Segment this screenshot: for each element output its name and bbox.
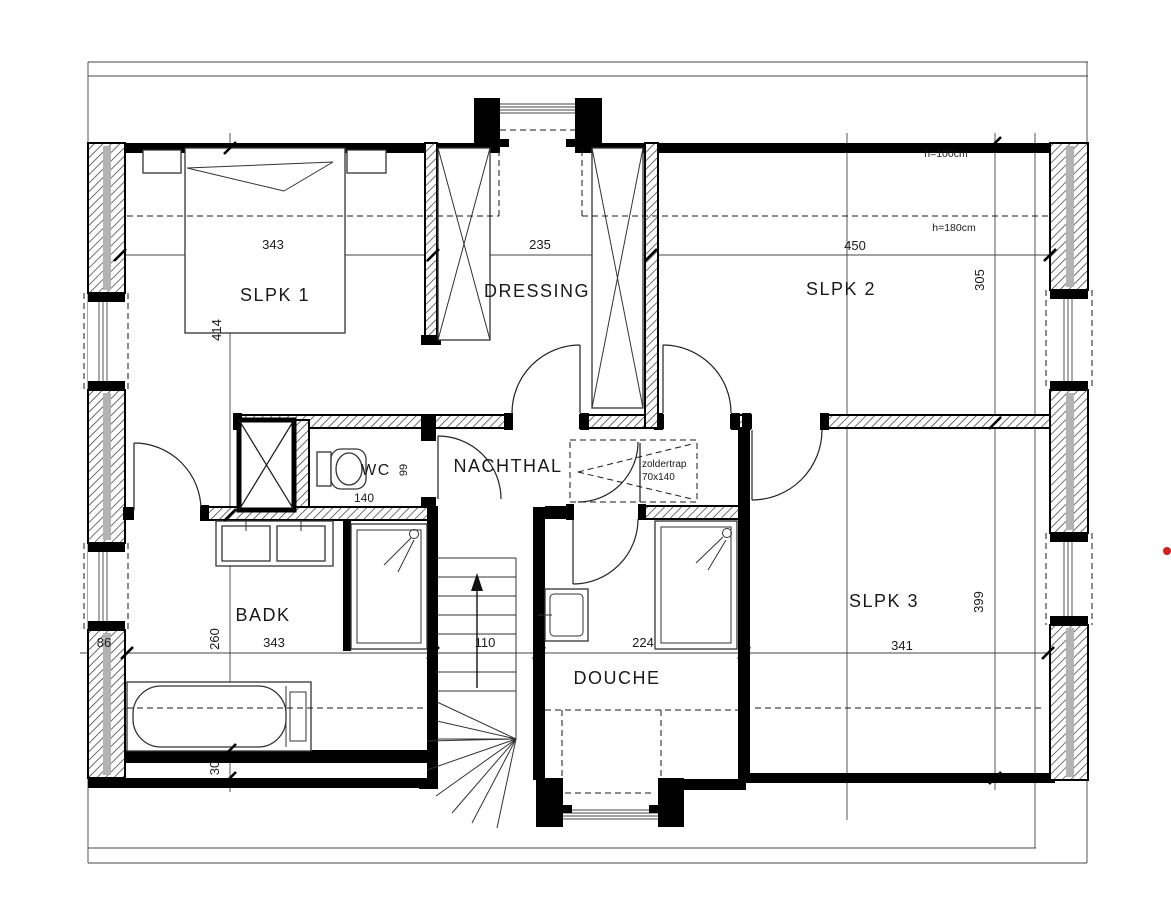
wall-dressing-east bbox=[645, 143, 658, 428]
wall-right-segment-3 bbox=[1050, 625, 1088, 780]
dim-stairs-width: 110 bbox=[475, 635, 496, 650]
stairs bbox=[427, 558, 516, 828]
wardrobe-left bbox=[438, 148, 490, 340]
attic-hatch-label: zoldertrap bbox=[642, 459, 687, 470]
dim-slpk3-height: 399 bbox=[971, 591, 986, 613]
wall-douche-east bbox=[738, 428, 750, 783]
dormer-south-pier-left bbox=[536, 778, 563, 827]
washbasin-douche bbox=[538, 589, 588, 641]
dormer-south bbox=[536, 710, 738, 827]
wall-bottom-left bbox=[88, 778, 438, 788]
toilet bbox=[317, 449, 366, 489]
dim-slpk1-height: 414 bbox=[209, 319, 224, 341]
dim-slpk3-width: 341 bbox=[891, 638, 913, 653]
window-right-2 bbox=[1046, 533, 1092, 625]
wall-stairs-east bbox=[533, 507, 545, 780]
dim-slpk2-height: 305 bbox=[972, 269, 987, 291]
attic-hatch-size: 70x140 bbox=[642, 472, 675, 483]
dim-wc-width: 140 bbox=[354, 491, 374, 505]
dim-douche-width: 224 bbox=[632, 635, 654, 650]
wall-left-segment-2 bbox=[88, 390, 125, 543]
window-left-2 bbox=[84, 543, 128, 630]
room-label-slpk1: SLPK 1 bbox=[240, 285, 310, 305]
wall-badk-bottom bbox=[123, 750, 433, 763]
attic-hatch: zoldertrap 70x140 bbox=[570, 440, 697, 502]
dim-slpk2-width: 450 bbox=[844, 238, 866, 253]
dim-badk-window: 86 bbox=[97, 635, 111, 650]
wall-bottom-stub bbox=[684, 779, 746, 790]
wall-badk-north bbox=[201, 507, 437, 520]
wall-wc-east-stub-top bbox=[421, 415, 436, 441]
wall-slpk3-north bbox=[822, 415, 1050, 428]
wardrobe-right bbox=[592, 148, 643, 408]
wall-hall-south-2 bbox=[640, 506, 740, 519]
wall-bottom-slpk3 bbox=[745, 773, 1055, 783]
window-right-1 bbox=[1046, 290, 1092, 390]
dormer-south-pier-right bbox=[658, 778, 684, 827]
bathtub bbox=[127, 682, 311, 751]
floor-plan-drawing: zoldertrap 70x140 bbox=[0, 0, 1171, 897]
wall-left-segment-3 bbox=[88, 630, 125, 778]
dim-badk-kneewall-offset: 30 bbox=[207, 761, 222, 775]
dormer-north-pier-left bbox=[474, 98, 500, 150]
wall-shower-partition bbox=[343, 521, 351, 651]
door-slpk2 bbox=[663, 345, 731, 413]
dim-badk-depth: 260 bbox=[207, 628, 222, 650]
duct-shaft bbox=[239, 420, 294, 510]
vanity-badk bbox=[216, 521, 333, 566]
nightstand-left bbox=[143, 150, 181, 173]
dormer-north bbox=[474, 98, 602, 216]
wall-right-segment-1 bbox=[1050, 143, 1088, 290]
wall-dressing-west bbox=[425, 143, 437, 343]
door-douche bbox=[573, 519, 638, 584]
dim-wc-depth: 99 bbox=[398, 464, 410, 476]
room-label-wc: WC bbox=[361, 462, 391, 479]
red-marker-dot bbox=[1163, 547, 1171, 555]
wall-left-segment-1 bbox=[88, 143, 125, 293]
dim-badk-width: 343 bbox=[263, 635, 285, 650]
door-slpk3 bbox=[752, 430, 822, 500]
room-label-slpk3: SLPK 3 bbox=[849, 591, 919, 611]
room-label-douche: DOUCHE bbox=[573, 668, 660, 688]
dormer-north-pier-right bbox=[575, 98, 602, 150]
room-label-slpk2: SLPK 2 bbox=[806, 279, 876, 299]
note-kneewall-height: h=100cm bbox=[924, 148, 968, 160]
door-badk bbox=[134, 443, 201, 510]
shower-douche bbox=[655, 521, 737, 649]
floor-plan-page: zoldertrap 70x140 bbox=[0, 0, 1171, 897]
shower-badk bbox=[351, 524, 427, 649]
note-headroom-line: h=180cm bbox=[932, 222, 976, 234]
stairs-direction-arrow bbox=[471, 573, 483, 688]
wall-right-segment-2 bbox=[1050, 390, 1088, 533]
room-label-badk: BADK bbox=[235, 605, 290, 625]
door-dressing bbox=[512, 345, 580, 413]
room-label-nachthal: NACHTHAL bbox=[453, 456, 562, 476]
room-label-dressing: DRESSING bbox=[484, 281, 590, 301]
nightstand-right bbox=[347, 150, 386, 173]
dim-dressing-width: 235 bbox=[529, 237, 551, 252]
wall-stairs-west bbox=[427, 507, 438, 780]
window-left-1 bbox=[84, 293, 128, 390]
dim-slpk1-width: 343 bbox=[262, 237, 284, 252]
